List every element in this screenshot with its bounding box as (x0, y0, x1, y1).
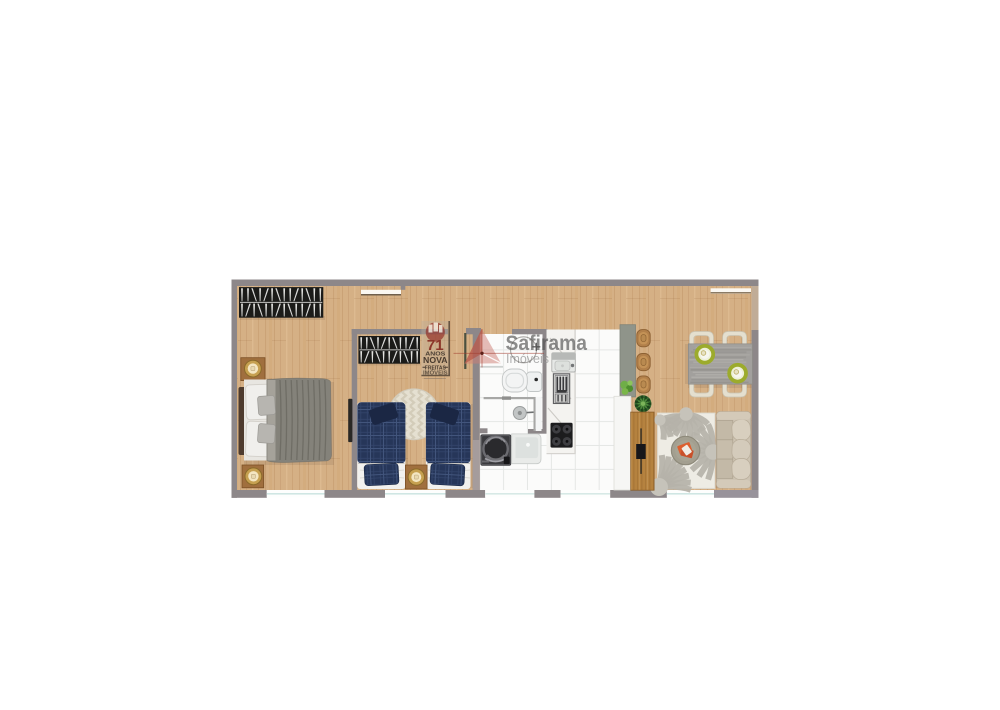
svg-text:NOVA: NOVA (423, 355, 448, 365)
svg-text:IMÓVEIS: IMÓVEIS (423, 369, 448, 377)
svg-text:Imóveis: Imóveis (506, 351, 549, 366)
